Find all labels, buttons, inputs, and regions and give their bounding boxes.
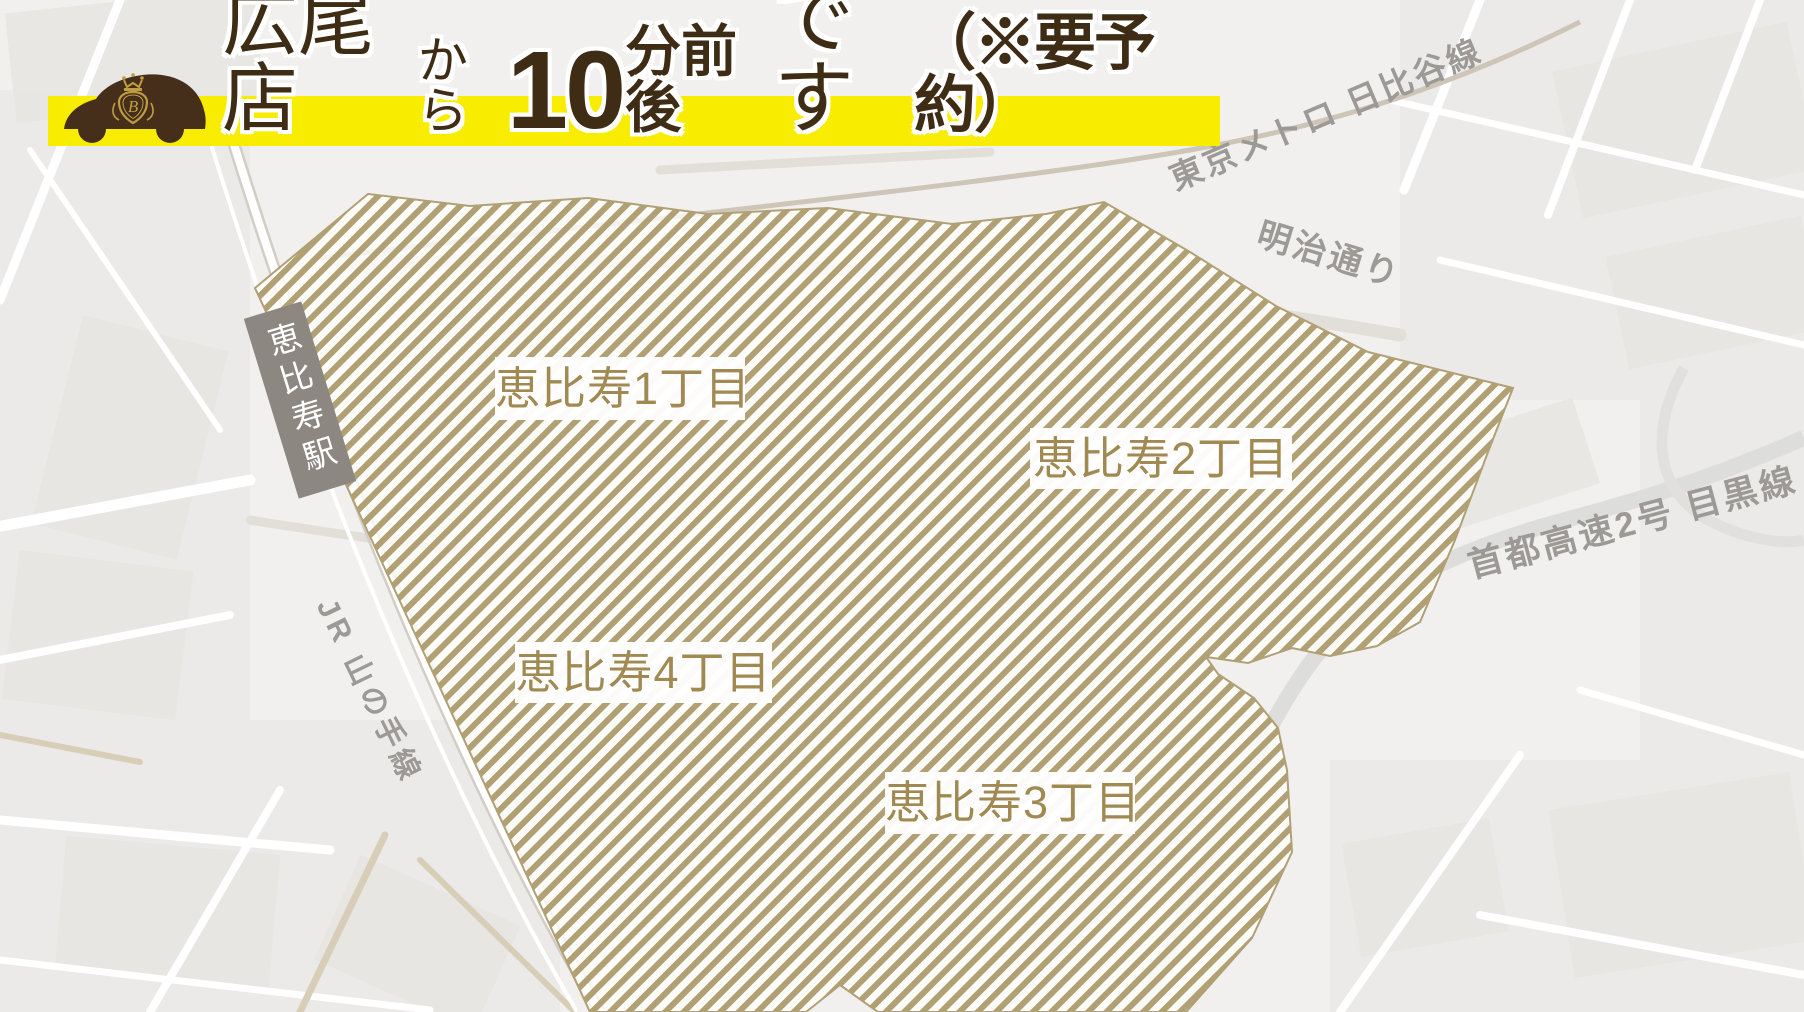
page-title: 広尾店 から 10 分前後 です （※要予約） <box>222 0 1220 146</box>
district-label-ebisu-4: 恵比寿4丁目 <box>515 642 772 703</box>
district-label-ebisu-3: 恵比寿3丁目 <box>885 772 1135 834</box>
district-label-ebisu-2: 恵比寿2丁目 <box>1030 428 1292 489</box>
title-part-kara: から <box>418 36 503 146</box>
title-part-desu: です <box>774 0 910 146</box>
title-part-minutes-number: 10 <box>507 36 623 146</box>
map-background <box>0 0 1804 1012</box>
title-part-reservation-note: （※要予約） <box>914 13 1220 146</box>
map-stage: 恵比寿1丁目 恵比寿2丁目 恵比寿3丁目 恵比寿4丁目 恵比寿駅 東京メトロ 日… <box>0 0 1804 1012</box>
district-label-text: 恵比寿3丁目 <box>885 772 1141 834</box>
classic-car-logo-icon: B <box>58 59 208 145</box>
district-label-text: 恵比寿4丁目 <box>515 642 771 703</box>
district-label-text: 恵比寿1丁目 <box>495 357 751 420</box>
crest-letter: B <box>128 97 139 116</box>
district-label-text: 恵比寿2丁目 <box>1033 428 1289 489</box>
title-part-fun-zengo: 分前後 <box>625 24 768 146</box>
district-label-ebisu-1: 恵比寿1丁目 <box>495 357 745 420</box>
title-banner: B 広尾店 から 10 分前後 です （※要予約） <box>48 34 1220 146</box>
title-part-shop: 広尾店 <box>222 0 416 146</box>
